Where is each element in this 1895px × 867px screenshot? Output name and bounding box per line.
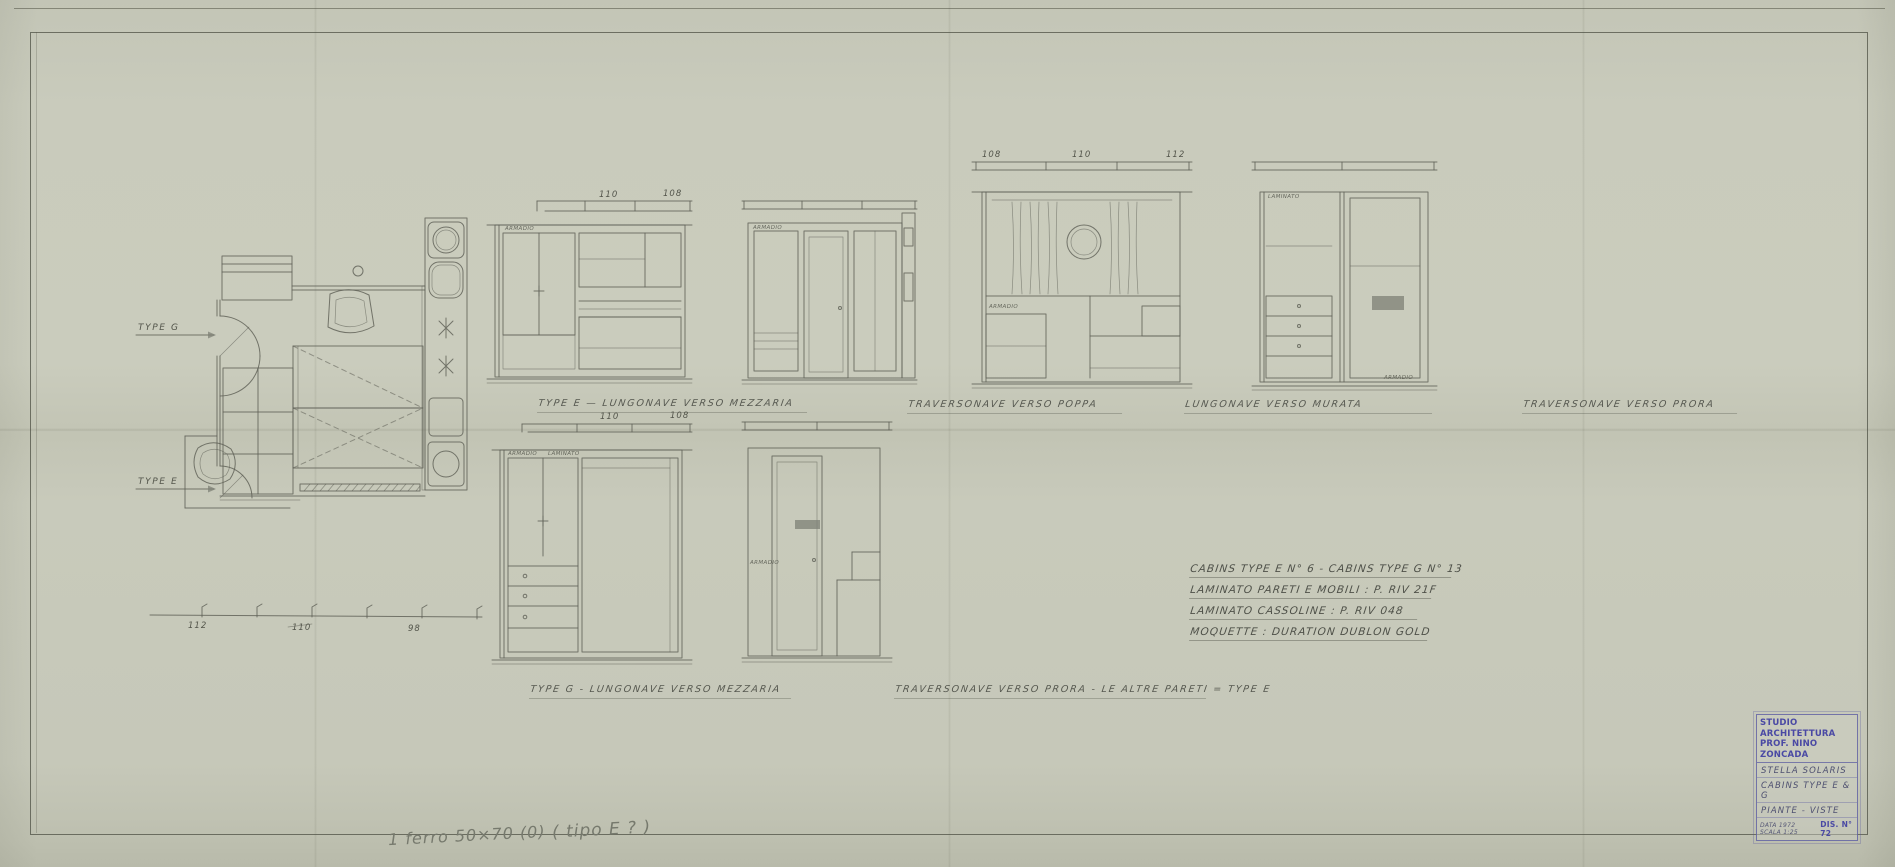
- note-line-2: LAMINATO PARETI E MOBILI : P. RIV 21F: [1189, 584, 1433, 599]
- sheet-border-inner: [36, 32, 37, 833]
- svg-text:110: 110: [600, 412, 619, 422]
- stamp-meta-date-scale: DATA 1972 SCALA 1:25: [1760, 822, 1817, 836]
- svg-text:110: 110: [1072, 150, 1091, 160]
- plan-chair: [335, 297, 367, 327]
- note-line-3: LAMINATO CASSOLINE : P. RIV 048: [1189, 605, 1419, 620]
- svg-text:108: 108: [982, 150, 1001, 160]
- side-strip: [902, 213, 915, 378]
- plan-section-type-e: TYPE E: [136, 477, 216, 493]
- plan-bathroom: [422, 218, 467, 490]
- plan-door-type-g: [220, 316, 260, 396]
- ceiling-line: [742, 422, 892, 430]
- plan-dimension-line: 112 110 98: [150, 604, 482, 634]
- svg-text:TYPE G: TYPE G: [138, 323, 180, 333]
- stamp-subject: CABINS TYPE E & G: [1757, 778, 1857, 803]
- elevation-poppa: ARMADIO: [742, 183, 917, 398]
- drawing-sheet: TYPE G TYPE E 112 110 98 110 108: [0, 0, 1895, 867]
- plan-section-type-g: TYPE G: [136, 323, 216, 339]
- stamp-studio-line1: STUDIO ARCHITETTURA: [1760, 718, 1854, 739]
- wardrobe: [508, 458, 578, 652]
- elevation-type-g-mezzaria: 110 108 ARMADIO LAMINATO: [492, 406, 692, 676]
- plan-wardrobe: [223, 368, 293, 494]
- caption-elevation-6: TRAVERSONAVE VERSO PRORA - LE ALTRE PARE…: [894, 684, 1208, 699]
- porthole-icon: [1067, 225, 1101, 259]
- dimension-line: 110 108: [537, 189, 692, 211]
- valve-icon: [439, 356, 453, 376]
- left-shelves: [754, 231, 798, 371]
- plan-closet: [222, 256, 292, 300]
- svg-text:108: 108: [663, 189, 682, 199]
- svg-text:ARMADIO: ARMADIO: [752, 225, 782, 231]
- stamp-meta: DATA 1972 SCALA 1:25 DIS. N° 72: [1757, 818, 1857, 840]
- dimension-line: 110 108: [522, 411, 692, 432]
- svg-text:112: 112: [1166, 150, 1185, 160]
- note-line-1: CABINS TYPE E N° 6 - CABINS TYPE G N° 13: [1189, 563, 1453, 578]
- svg-text:ARMADIO: ARMADIO: [1383, 375, 1413, 381]
- stamp-project: STELLA SOLARIS: [1757, 763, 1857, 778]
- caption-elevation-3: LUNGONAVE VERSO MURATA: [1184, 399, 1434, 414]
- bed: [579, 301, 681, 369]
- stamp-studio: STUDIO ARCHITETTURA PROF. NINO ZONCADA: [1757, 715, 1857, 763]
- elevation-prora: LAMINATO ARMADIO: [1252, 146, 1437, 398]
- note-line-4: MOQUETTE : DURATION DUBLON GOLD: [1189, 626, 1429, 641]
- seat-steps: [837, 552, 880, 656]
- right-panel: [1350, 198, 1420, 378]
- dresser: [1266, 246, 1332, 378]
- svg-text:ARMADIO: ARMADIO: [988, 304, 1018, 310]
- mirror-panel: [854, 231, 896, 371]
- ceiling-line: [1252, 162, 1437, 170]
- svg-text:112: 112: [188, 621, 207, 631]
- stamp-meta-drawing-number: DIS. N° 72: [1820, 820, 1855, 838]
- svg-text:98: 98: [408, 624, 421, 634]
- plan-beds: [293, 346, 423, 468]
- caption-elevation-2: TRAVERSONAVE VERSO POPPA: [907, 399, 1124, 414]
- pencil-note-tipo: ( tipo E ? ): [552, 817, 652, 842]
- plan-hatch-sill: [300, 484, 420, 491]
- svg-text:ARMADIO: ARMADIO: [749, 560, 779, 566]
- wall-panel: [582, 458, 678, 652]
- svg-text:110: 110: [599, 190, 618, 200]
- wardrobe-doors: [503, 233, 575, 335]
- floor-plan: TYPE G TYPE E 112 110 98: [130, 198, 490, 643]
- stamp-content: PIANTE - VISTE: [1757, 803, 1857, 818]
- curtain: [992, 200, 1172, 294]
- svg-text:ARMADIO: ARMADIO: [504, 226, 534, 232]
- shelving: [579, 233, 681, 287]
- divider: [1340, 192, 1344, 382]
- door: [804, 231, 848, 378]
- dimension-line: 108 110 112: [972, 150, 1192, 170]
- svg-text:LAMINATO: LAMINATO: [1268, 194, 1300, 200]
- caption-elevation-4: TRAVERSONAVE VERSO PRORA: [1522, 399, 1739, 414]
- svg-text:TYPE E: TYPE E: [138, 477, 178, 487]
- cabinet: [986, 314, 1046, 378]
- svg-text:LAMINATO: LAMINATO: [548, 451, 580, 457]
- caption-elevation-1: TYPE E — LUNGONAVE VERSO MEZZARIA: [537, 398, 809, 413]
- elevation-type-g-prora: ARMADIO: [742, 412, 892, 677]
- plan-walls: [185, 286, 425, 508]
- caption-elevation-5: TYPE G - LUNGONAVE VERSO MEZZARIA: [529, 684, 793, 699]
- sofa: [1090, 296, 1180, 378]
- stamp-studio-line2: PROF. NINO ZONCADA: [1760, 739, 1854, 760]
- ceiling-line: [742, 201, 917, 209]
- elevation-type-e-mezzaria: 110 108 ARMADIO: [487, 183, 692, 398]
- plan-table: [353, 266, 363, 276]
- svg-text:ARMADIO: ARMADIO: [507, 451, 537, 457]
- door: [772, 456, 822, 656]
- elevation-murata: 108 110 112 ARMADIO: [972, 146, 1192, 398]
- valve-icon: [439, 318, 453, 338]
- title-stamp: STUDIO ARCHITETTURA PROF. NINO ZONCADA S…: [1756, 714, 1858, 841]
- plan-chair: [328, 290, 374, 333]
